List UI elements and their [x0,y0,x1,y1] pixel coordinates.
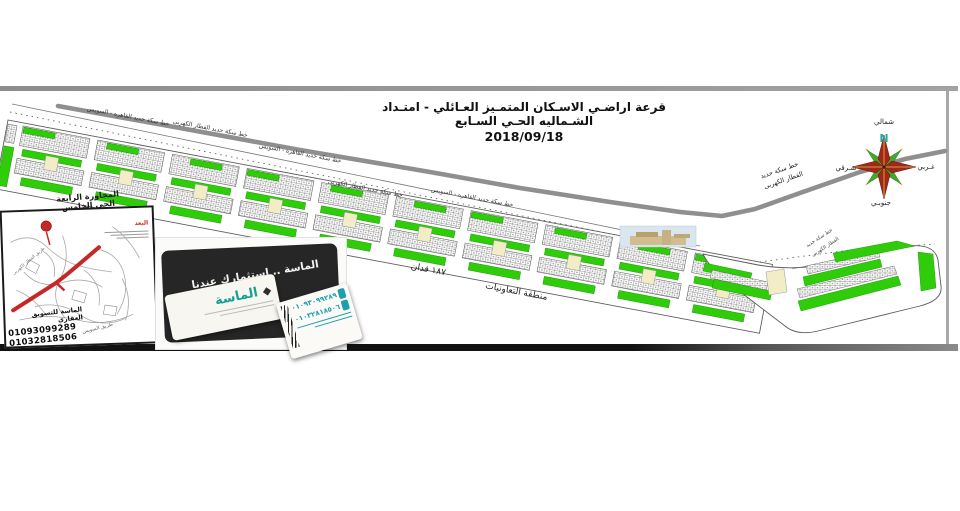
plot-block-shape [193,184,208,200]
inset-road-suez-label: طريق السويس [82,322,114,335]
plot-block-shape [566,254,581,270]
plan-date: 2018/09/18 [378,129,670,144]
inset-legend: البعد [96,210,149,240]
plot-block-shape [118,170,133,186]
compass-rose: شمالي N شـرقي غـربي جنوبـي [836,118,936,207]
plot-block-shape [492,240,507,256]
plot-block-shape [43,156,58,172]
plot-block-shape [641,269,656,285]
legend-line [111,234,149,236]
plan-title: قرعة اراضـي الاسـكان المتمـيز العـائلي -… [378,100,670,128]
phone-icon [341,299,351,311]
compass-south-label: جنوبـي [871,199,891,207]
compass-north-label: شمالي [874,118,894,126]
station-building-image [620,226,696,247]
compass-west-label: غـربي [917,163,935,171]
card-dark-mat: الماسة .. استثمارك عندنا ◆ الماسة ٠١٠٩٣٠… [161,243,341,343]
screenshot-stage: خط سكة حديد القاهره - السويس خط سكة حديد… [0,0,960,511]
rail-label-cairo-suez-1: خط سكة حديد القاهره - السويس [87,105,171,127]
inset-agency-block: الماسة للتسويق العقاري 01093099289 01032… [6,305,85,349]
inset-road-electric-label: طريق القطار الكهربى [11,245,46,276]
business-card-photo: الماسة .. استثمارك عندنا ◆ الماسة ٠١٠٩٣٠… [155,237,347,350]
legend-line [104,231,148,234]
inset-legend-title: البعد [134,220,148,227]
plot-block-shape [342,212,357,228]
plot-block-shape [267,198,282,214]
compass-east-label: شـرقي [836,164,857,172]
phone-icon [337,288,347,300]
diamond-icon: ◆ [262,284,273,298]
compass-n-letter: N [879,132,888,145]
location-inset-map: طريق القطار الكهربى طريق السويس البعد ال… [0,205,158,348]
plot-block-shape [417,226,432,242]
inset-location-pin-icon [41,221,52,232]
plan-title-block: قرعة اراضـي الاسـكان المتمـيز العـائلي -… [378,100,670,144]
